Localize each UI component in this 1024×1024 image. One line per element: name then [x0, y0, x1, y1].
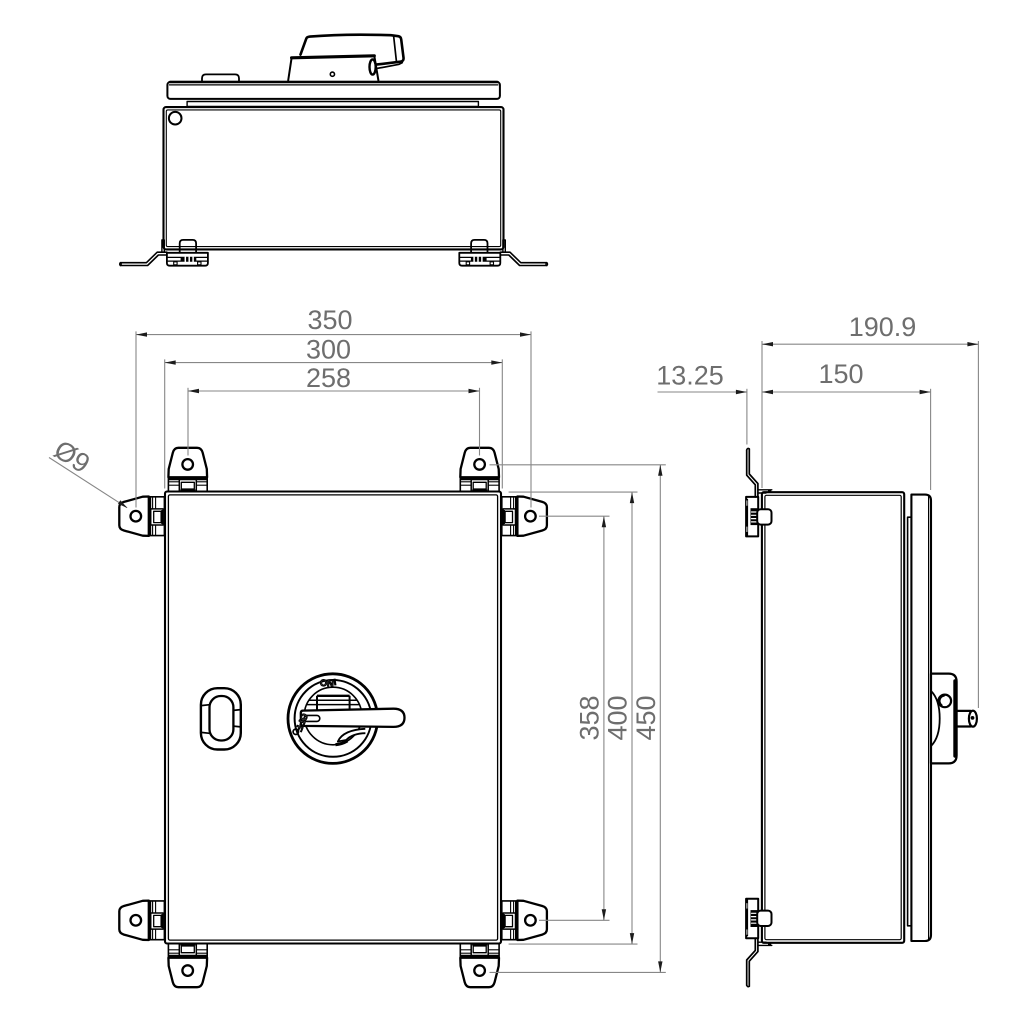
- svg-text:450: 450: [631, 695, 661, 740]
- svg-text:300: 300: [306, 334, 351, 364]
- svg-text:ON: ON: [320, 678, 335, 689]
- svg-text:258: 258: [306, 363, 351, 393]
- svg-text:358: 358: [574, 695, 604, 740]
- svg-text:350: 350: [307, 305, 352, 335]
- svg-text:13.25: 13.25: [656, 361, 724, 391]
- svg-text:190.9: 190.9: [849, 312, 917, 342]
- svg-text:400: 400: [603, 695, 633, 740]
- svg-text:150: 150: [818, 359, 863, 389]
